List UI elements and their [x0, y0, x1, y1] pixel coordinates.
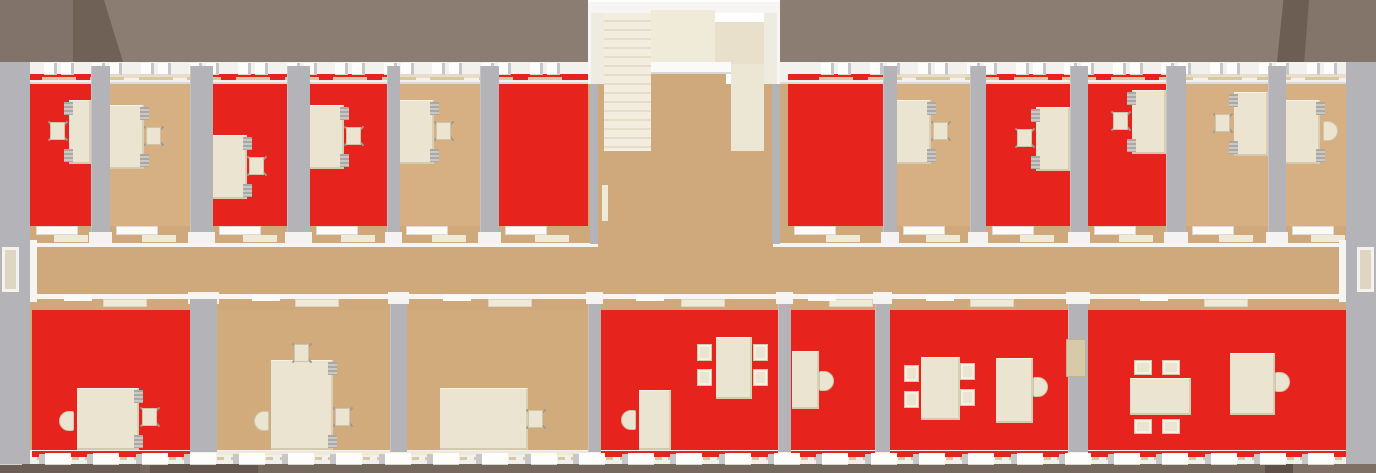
window-sill	[236, 77, 270, 80]
interior-wall	[190, 66, 213, 244]
interior-wall	[1070, 66, 1088, 244]
stairwell-door-leaf[interactable]	[602, 185, 608, 221]
office-6-door[interactable]	[505, 226, 547, 235]
office-chair[interactable]	[1112, 111, 1130, 131]
window-casement-icon	[142, 453, 168, 465]
door-jamb	[1339, 240, 1346, 302]
desk-shelf-icon	[927, 102, 936, 115]
room-b2-door-leaf[interactable]	[252, 295, 280, 301]
door-jamb	[30, 240, 37, 302]
window-casement-icon	[61, 63, 74, 75]
desk-shelf-icon	[64, 149, 73, 162]
window-casement-icon	[821, 63, 834, 75]
interior-wall	[287, 66, 310, 244]
office-desk[interactable]	[310, 105, 344, 169]
office-6-floor[interactable]	[499, 84, 588, 226]
corridor-wall-top	[30, 243, 598, 247]
side-chair[interactable]	[960, 389, 975, 406]
window-casement-icon	[352, 63, 365, 75]
room-b7-floor[interactable]	[1088, 310, 1346, 452]
window-sill	[703, 457, 710, 460]
office-5-door-leaf[interactable]	[432, 235, 466, 242]
stairwell-left-wall	[588, 2, 604, 84]
office-desk[interactable]	[897, 100, 931, 164]
window-casement-icon	[1211, 453, 1237, 465]
chair-seat	[335, 408, 350, 426]
office-7-floor[interactable]	[788, 84, 883, 226]
window-sill	[1111, 77, 1145, 80]
interior-wall	[480, 66, 499, 244]
window-casement-icon	[288, 453, 314, 465]
office-7-door[interactable]	[794, 226, 836, 235]
interior-wall	[778, 296, 791, 452]
window-sill	[528, 77, 562, 80]
room-b7-door[interactable]	[1204, 299, 1248, 307]
window-casement-icon	[676, 453, 702, 465]
chair-seat	[142, 408, 157, 426]
window-sill	[916, 77, 950, 80]
window-sill	[412, 457, 419, 460]
chair-seat	[294, 344, 309, 362]
window-casement-icon	[1016, 63, 1029, 75]
window-sill	[1044, 457, 1051, 460]
round-chair[interactable]	[254, 411, 269, 431]
chair-seat	[933, 122, 948, 140]
window-casement-icon	[1308, 453, 1334, 465]
window-casement-icon	[158, 63, 171, 75]
window-casement-icon	[1260, 453, 1286, 465]
window-sill	[460, 457, 467, 460]
corridor-wall-top	[773, 243, 1346, 247]
roof	[1300, 0, 1376, 62]
window-sill	[1208, 77, 1242, 80]
desk-shelf-icon	[430, 149, 439, 162]
window-casement-icon	[433, 453, 459, 465]
window-sill	[72, 457, 79, 460]
office-desk[interactable]	[1230, 353, 1275, 415]
office-chair[interactable]	[141, 407, 159, 427]
desk-shelf-icon	[134, 435, 143, 448]
window-casement-icon	[336, 453, 362, 465]
window-casement-icon	[432, 63, 445, 75]
window-sill	[430, 77, 464, 80]
chair-seat	[1113, 112, 1128, 130]
window-casement-icon	[1307, 63, 1320, 75]
office-desk[interactable]	[110, 105, 144, 169]
window-casement-icon	[871, 453, 897, 465]
window-sill	[801, 457, 808, 460]
interior-wall	[1166, 66, 1186, 244]
desk-shelf-icon	[1229, 94, 1238, 107]
window-casement-icon	[1210, 63, 1223, 75]
office-chair[interactable]	[527, 409, 545, 429]
floorplan-scene	[0, 0, 1376, 473]
window-casement-icon	[628, 453, 654, 465]
window-casement-icon	[498, 63, 511, 75]
meeting-table[interactable]	[1130, 378, 1191, 415]
room-b4-door[interactable]	[681, 299, 725, 307]
stairwell-landing-floor[interactable]	[651, 74, 726, 154]
window-sill	[1141, 457, 1148, 460]
desk-shelf-icon	[328, 435, 337, 448]
window-sill	[120, 457, 127, 460]
side-chair[interactable]	[904, 391, 919, 408]
window-sill	[266, 457, 273, 460]
side-chair[interactable]	[1162, 419, 1180, 434]
window-sill	[655, 457, 662, 460]
interior-wall	[190, 296, 217, 452]
chair-seat	[346, 127, 361, 145]
desk-shelf-icon	[134, 390, 143, 403]
office-10-door-leaf[interactable]	[1119, 235, 1153, 242]
office-8-door[interactable]	[903, 226, 945, 235]
interior-wall	[970, 66, 986, 244]
desk-shelf-icon	[927, 149, 936, 162]
window-casement-icon	[255, 63, 268, 75]
desk-shelf-icon	[140, 154, 149, 167]
side-chair[interactable]	[1162, 360, 1180, 375]
office-chair[interactable]	[248, 156, 266, 176]
office-12-door[interactable]	[1292, 226, 1334, 235]
window-casement-icon	[141, 63, 154, 75]
stairwell-lower-floor[interactable]	[598, 151, 772, 244]
stairwell-right-wall-lower	[772, 84, 780, 244]
window-casement-icon	[725, 453, 751, 465]
stairwell-panel	[651, 10, 715, 66]
window-sill	[1238, 457, 1245, 460]
window-sill	[217, 457, 224, 460]
interior-wall	[390, 296, 407, 452]
interior-wall	[1268, 66, 1286, 244]
window-casement-icon	[1324, 63, 1337, 75]
window-casement-icon	[190, 453, 216, 465]
side-chair[interactable]	[753, 369, 768, 386]
window-sill	[42, 77, 76, 80]
window-sill	[1287, 457, 1294, 460]
room-b6-door[interactable]	[970, 299, 1014, 307]
window-casement-icon	[93, 453, 119, 465]
exterior-door-right[interactable]	[1357, 247, 1374, 292]
stairwell-panel	[715, 22, 764, 66]
window-sill	[606, 457, 613, 460]
interior-wall	[883, 66, 897, 244]
window-sill	[1335, 457, 1342, 460]
window-casement-icon	[579, 453, 605, 465]
window-casement-icon	[1114, 453, 1140, 465]
desk-shelf-icon	[243, 137, 252, 150]
staircase-steps[interactable]	[604, 13, 651, 150]
chair-seat	[436, 122, 451, 140]
chair-seat	[146, 127, 161, 145]
stairwell-lintel	[651, 62, 731, 74]
desk-shelf-icon	[140, 107, 149, 120]
office-10-door[interactable]	[1094, 226, 1136, 235]
office-8-door-leaf[interactable]	[926, 235, 960, 242]
side-chair[interactable]	[697, 344, 712, 361]
window-sill	[995, 457, 1002, 460]
room-b2-door[interactable]	[295, 299, 339, 307]
window-casement-icon	[870, 63, 883, 75]
office-7-door-leaf[interactable]	[826, 235, 860, 242]
round-chair[interactable]	[621, 410, 636, 430]
office-1-door-leaf[interactable]	[54, 235, 88, 242]
office-chair[interactable]	[293, 343, 311, 363]
office-desk[interactable]	[1036, 107, 1070, 171]
chair-seat	[1215, 114, 1230, 132]
office-desk[interactable]	[1286, 100, 1320, 164]
window-sill	[1014, 77, 1048, 80]
office-chair[interactable]	[145, 126, 163, 146]
window-sill	[139, 77, 173, 80]
desk-shelf-icon	[430, 102, 439, 115]
chair-seat	[50, 122, 65, 140]
window-sill	[819, 77, 853, 80]
office-9-door[interactable]	[992, 226, 1034, 235]
window-casement-icon	[238, 63, 251, 75]
window-casement-icon	[822, 453, 848, 465]
room-b1-door-leaf[interactable]	[64, 295, 92, 301]
stairwell[interactable]	[588, 2, 780, 244]
window-casement-icon	[935, 63, 948, 75]
window-casement-icon	[1227, 63, 1240, 75]
exterior-door-left[interactable]	[2, 247, 19, 292]
office-desk[interactable]	[1132, 90, 1166, 154]
desk-shelf-icon	[1229, 141, 1238, 154]
office-5-door[interactable]	[406, 226, 448, 235]
room-b4-door-leaf[interactable]	[636, 295, 664, 301]
office-chair[interactable]	[1214, 113, 1232, 133]
office-desk[interactable]	[400, 100, 434, 164]
window-sill	[509, 457, 516, 460]
meeting-table[interactable]	[271, 360, 333, 450]
window-casement-icon	[838, 63, 851, 75]
office-4-door-leaf[interactable]	[341, 235, 375, 242]
room-b6-door-leaf[interactable]	[926, 295, 954, 301]
desk-shelf-icon	[64, 102, 73, 115]
window-sill	[1305, 77, 1339, 80]
office-6-door-leaf[interactable]	[535, 235, 569, 242]
side-chair[interactable]	[904, 365, 919, 382]
desk-shelf-icon	[1127, 92, 1136, 105]
window-sill	[946, 457, 953, 460]
office-desk[interactable]	[639, 390, 671, 450]
meeting-table[interactable]	[440, 388, 528, 450]
desk-shelf-icon	[1127, 139, 1136, 152]
office-chair[interactable]	[1016, 128, 1034, 148]
stairwell-right-wall	[764, 2, 780, 84]
window-sill	[1189, 457, 1196, 460]
window-casement-icon	[530, 63, 543, 75]
cabinet[interactable]	[1066, 339, 1086, 377]
side-chair[interactable]	[960, 363, 975, 380]
window-sill	[333, 77, 367, 80]
window-casement-icon	[1017, 453, 1043, 465]
window-casement-icon	[1065, 453, 1091, 465]
window-casement-icon	[385, 453, 411, 465]
window-sill	[169, 457, 176, 460]
room-b7-door-leaf[interactable]	[1140, 295, 1168, 301]
office-2-door-leaf[interactable]	[142, 235, 176, 242]
office-desk[interactable]	[1234, 92, 1268, 156]
window-casement-icon	[45, 453, 71, 465]
window-sill	[558, 457, 565, 460]
desk-shelf-icon	[1316, 149, 1325, 162]
desk-shelf-icon	[340, 154, 349, 167]
office-9-door-leaf[interactable]	[1020, 235, 1054, 242]
window-sill	[898, 457, 905, 460]
office-chair[interactable]	[435, 121, 453, 141]
window-casement-icon	[1033, 63, 1046, 75]
window-casement-icon	[109, 63, 122, 75]
office-3-door-leaf[interactable]	[243, 235, 277, 242]
office-chair[interactable]	[345, 126, 363, 146]
chair-seat	[249, 157, 264, 175]
window-casement-icon	[968, 453, 994, 465]
interior-wall	[387, 66, 400, 244]
window-sill	[752, 457, 759, 460]
window-casement-icon	[774, 453, 800, 465]
meeting-table[interactable]	[77, 388, 139, 450]
round-chair[interactable]	[59, 411, 74, 431]
office-11-door-leaf[interactable]	[1219, 235, 1253, 242]
chair-seat	[1017, 129, 1032, 147]
window-casement-icon	[918, 63, 931, 75]
office-desk[interactable]	[996, 358, 1033, 423]
office-chair[interactable]	[334, 407, 352, 427]
window-casement-icon	[44, 63, 57, 75]
stairwell-left-wall-lower	[590, 84, 598, 244]
window-casement-icon	[482, 453, 508, 465]
side-chair[interactable]	[697, 369, 712, 386]
desk-shelf-icon	[1031, 109, 1040, 122]
window-casement-icon	[1162, 453, 1188, 465]
office-11-door[interactable]	[1192, 226, 1234, 235]
window-casement-icon	[919, 453, 945, 465]
office-4-door[interactable]	[316, 226, 358, 235]
window-casement-icon	[547, 63, 560, 75]
roof	[0, 0, 75, 62]
side-chair[interactable]	[1134, 419, 1152, 434]
chair-seat	[528, 410, 543, 428]
office-2-door[interactable]	[116, 226, 158, 235]
office-chair[interactable]	[49, 121, 67, 141]
room-b3-door-leaf[interactable]	[443, 295, 471, 301]
office-1-door[interactable]	[36, 226, 78, 235]
office-desk[interactable]	[792, 351, 819, 409]
side-chair[interactable]	[753, 344, 768, 361]
window-casement-icon	[531, 453, 557, 465]
stairwell-panel	[731, 64, 764, 154]
desk-shelf-icon	[243, 184, 252, 197]
desk-shelf-icon	[328, 362, 337, 375]
room-b5-door-leaf[interactable]	[808, 295, 836, 301]
window-casement-icon	[449, 63, 462, 75]
meeting-table[interactable]	[921, 357, 960, 420]
interior-wall	[875, 296, 890, 452]
window-casement-icon	[1113, 63, 1126, 75]
window-casement-icon	[335, 63, 348, 75]
desk-shelf-icon	[1031, 156, 1040, 169]
desk-shelf-icon	[340, 107, 349, 120]
office-desk[interactable]	[213, 135, 247, 199]
room-b3-door[interactable]	[488, 299, 532, 307]
desk-shelf-icon	[1316, 102, 1325, 115]
window-sill	[849, 457, 856, 460]
window-sill	[363, 457, 370, 460]
interior-wall	[588, 296, 601, 452]
window-casement-icon	[239, 453, 265, 465]
window-sill	[1092, 457, 1099, 460]
window-casement-icon	[1130, 63, 1143, 75]
meeting-table[interactable]	[716, 337, 752, 399]
side-chair[interactable]	[1134, 360, 1152, 375]
window-casement-icon	[401, 63, 414, 75]
office-chair[interactable]	[932, 121, 950, 141]
window-sill	[315, 457, 322, 460]
office-3-door[interactable]	[219, 226, 261, 235]
room-b1-door[interactable]	[103, 299, 147, 307]
interior-wall	[91, 66, 110, 244]
